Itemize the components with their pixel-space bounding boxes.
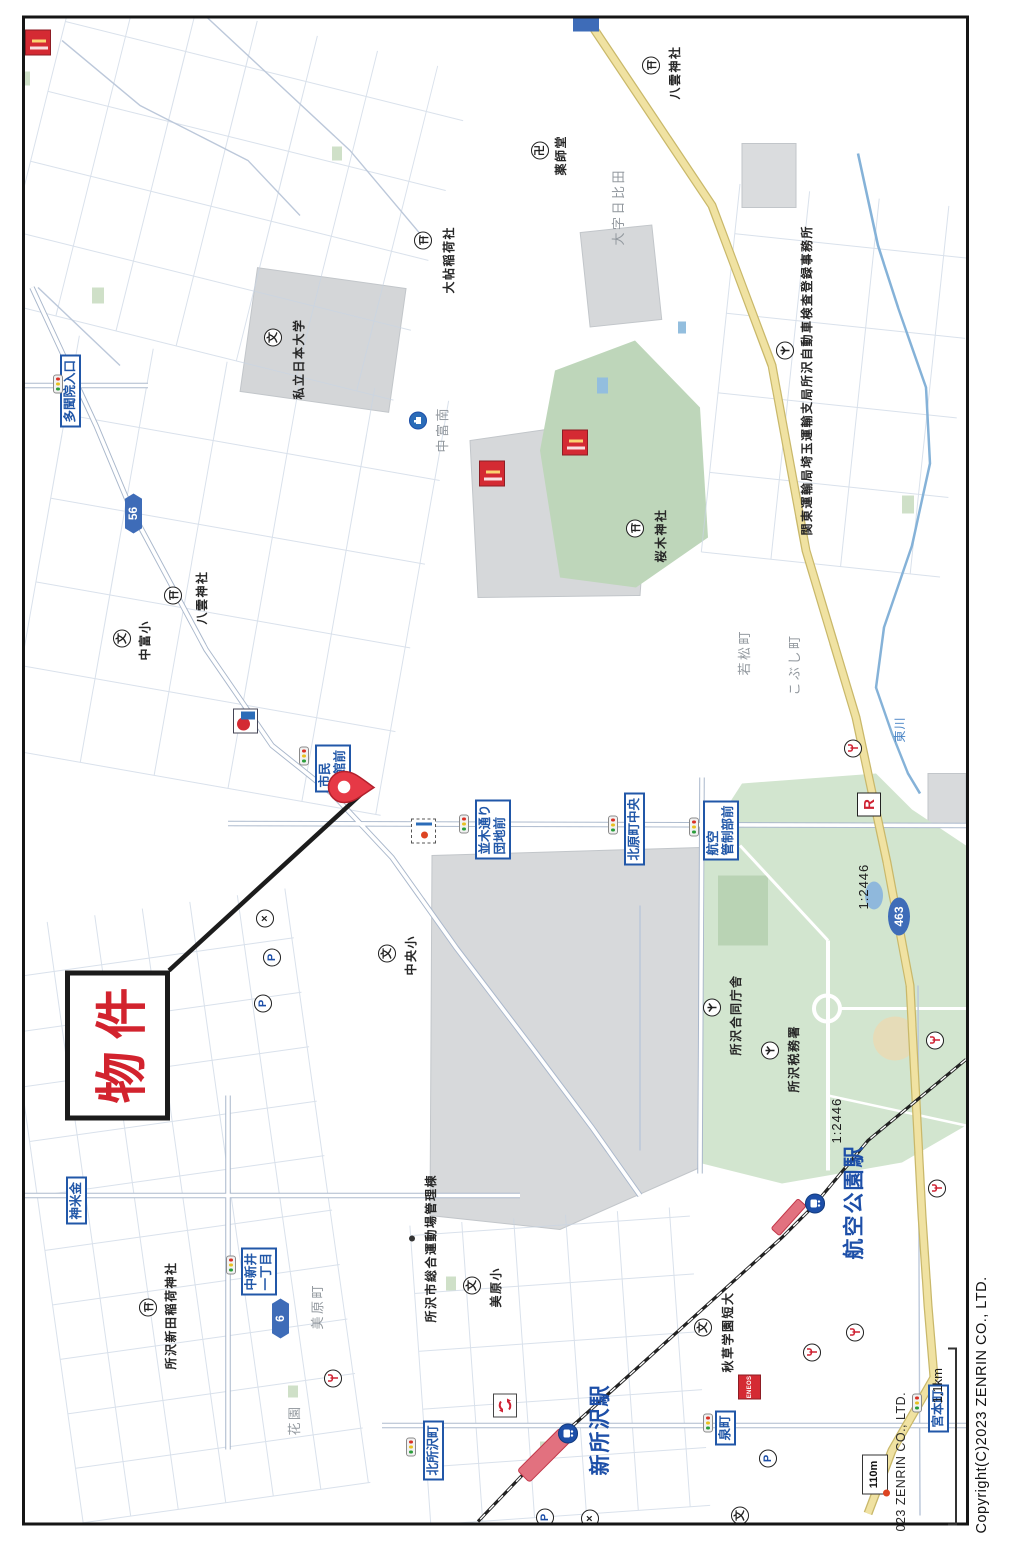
shrine-torii-icon (626, 519, 644, 537)
scanned-map-page: 多聞院入口市民道館前並木通り団地前北原町中央航空管制部前神米金中新井一丁目北所沢… (0, 0, 1020, 1545)
store-sign-marks (30, 46, 48, 49)
scale-bar-label: 1.1km (930, 1368, 945, 1403)
government-office-icon (776, 341, 794, 359)
boxed-label-text: 管制部前 (721, 805, 735, 855)
route-shield-text: 463 (892, 906, 906, 926)
school-icon: 文 (463, 1276, 481, 1294)
page-copyright: Copyright(C)2023 ZENRIN CO., LTD. (974, 1276, 990, 1533)
poi-name-text: 八雲神社 (195, 570, 209, 624)
boxed-label-line: 泉町 (718, 1415, 733, 1440)
poi-name: 所沢合同庁舎 (727, 974, 744, 1055)
poi-dot (409, 1235, 415, 1241)
traffic-light-icon (299, 746, 309, 765)
traffic-light-icon (912, 1393, 922, 1412)
traffic-light-icon (703, 1413, 713, 1432)
gas-blue-bar (241, 711, 255, 719)
boxed-label-text: 北原町中央 (627, 797, 641, 860)
boxed-label-text: 一丁目 (259, 1252, 273, 1290)
boxed-label-text: 北所沢町 (426, 1425, 440, 1475)
poi-name-text: 所沢新田稲荷神社 (164, 1261, 178, 1369)
gas-station-icon (233, 708, 258, 733)
boxed-label-tamonin-iriguchi: 多聞院入口 (60, 354, 81, 427)
restaurant-R-icon: R (857, 792, 881, 816)
red-store-icon (562, 429, 588, 455)
boxed-label-kita-tokorozawa-cho: 北所沢町 (423, 1420, 444, 1480)
boxed-label-text: 多聞院入口 (63, 359, 77, 422)
boxed-label-text: 航空 (706, 830, 720, 855)
traffic-light-icon (689, 817, 699, 836)
route-shield-text: 6 (273, 1315, 287, 1322)
store-sign-marks (32, 40, 46, 43)
boxed-label-line: 道館前 (333, 749, 348, 787)
school-icon: 文 (113, 629, 131, 647)
red-store-icon (25, 29, 51, 55)
boxed-label-kitahara-cho-chuo: 北原町中央 (624, 792, 645, 865)
boxed-label-text: 中新井 (244, 1252, 258, 1290)
signboard-marks (416, 822, 432, 825)
traffic-light-icon (226, 1255, 236, 1274)
route-shield-text: 56 (126, 506, 140, 519)
poi-name-text: 薬師堂 (554, 134, 568, 175)
parking-icon: P (536, 1508, 554, 1526)
boxed-label-text: 団地前 (493, 816, 507, 854)
poi-name: 私立日本大学 (290, 318, 307, 399)
boxed-label-text: 泉町 (718, 1415, 732, 1440)
government-office-icon (761, 1041, 779, 1059)
river-name: 東川 (891, 716, 908, 742)
restaurant-fork-icon (324, 1369, 342, 1387)
district-name: 中富南 (432, 405, 451, 452)
map-scale-ratio-text: 1:2446 (829, 1097, 844, 1143)
poi-name-text: 中央小 (404, 934, 418, 975)
distance-marker-110m: 110m (862, 1454, 888, 1494)
poi-name: 所沢税務署 (785, 1024, 802, 1092)
poi-name: 八雲神社 (666, 45, 683, 99)
boxed-label-line: 北原町中央 (627, 797, 642, 860)
boxed-label-line: 航空 (706, 805, 721, 855)
district-name-text: こぶし町 (787, 633, 802, 695)
train-station-icon (558, 1423, 578, 1443)
traffic-light-icon (53, 374, 63, 393)
property-label: 物件 (80, 975, 155, 1103)
poi-name: 関東運輸局埼玉運輸支局所沢自動車検査登録事務所 (798, 224, 815, 535)
roundabout-arrows-icon (493, 1393, 517, 1417)
store-sign-marks (484, 477, 502, 480)
poi-name-text: 八雲神社 (668, 45, 682, 99)
map-scale-ratio: 1:2446 (829, 1097, 844, 1143)
poi-name: 秋草学園短大 (719, 1291, 736, 1372)
district-name-text: 中富南 (435, 405, 450, 452)
poi-name: 桜木神社 (652, 508, 669, 562)
district-name: 花園 (284, 1404, 303, 1435)
boxed-label-line: 一丁目 (259, 1252, 274, 1290)
poi-name: 中央小 (402, 934, 419, 975)
gas-station-eneos-icon: ENEOS (738, 1374, 761, 1399)
store-sign-marks (567, 446, 585, 449)
red-store-icon (479, 460, 505, 486)
boxed-label-line: 中新井 (244, 1252, 259, 1290)
police-box-icon: × (581, 1509, 599, 1527)
poi-name: 所沢市総合運動場管理棟 (422, 1173, 439, 1322)
school-icon: 文 (694, 1318, 712, 1336)
school-icon: 文 (264, 328, 282, 346)
map-clip-area: 多聞院入口市民道館前並木通り団地前北原町中央航空管制部前神米金中新井一丁目北所沢… (0, 0, 1020, 1545)
parking-icon: P (263, 948, 281, 966)
station-name-text: 新所沢駅 (589, 1383, 612, 1475)
boxed-label-izumi-cho: 泉町 (715, 1410, 736, 1445)
route-shield-463: 463 (888, 897, 910, 935)
signboard-dot (421, 831, 428, 838)
poi-name: 中富小 (136, 619, 153, 660)
boxed-label-line: 市民 (318, 749, 333, 787)
store-sign-marks (569, 440, 583, 443)
map-scale-ratio: 1:2446 (856, 863, 871, 909)
poi-name: 大帖稲荷社 (440, 225, 457, 293)
boxed-label-nakaarai-itchome: 中新井一丁目 (241, 1247, 277, 1295)
parking-icon: P (759, 1449, 777, 1467)
scale-bar (948, 1347, 957, 1525)
district-name-text: 若松町 (737, 628, 752, 675)
route-shield-6: 6 (272, 1298, 289, 1338)
station-name-text: 航空公園駅 (843, 1144, 866, 1259)
property-callout-box: 物件 (65, 970, 170, 1120)
shrine-torii-icon (414, 231, 432, 249)
facility-icon-blue (409, 411, 427, 429)
district-name-text: 美原町 (310, 1282, 325, 1329)
signboard-icon (411, 818, 436, 843)
boxed-label-text: 神米金 (69, 1181, 83, 1219)
boxed-label-text: 並木通り (478, 804, 492, 854)
store-sign-marks (486, 471, 500, 474)
poi-name-text: 秋草学園短大 (721, 1291, 735, 1372)
poi-name-text: 所沢市総合運動場管理棟 (424, 1173, 438, 1322)
route-shield-56: 56 (125, 493, 142, 533)
restaurant-fork-icon (844, 739, 862, 757)
poi-name: 美原小 (487, 1266, 504, 1307)
labels-layer: 多聞院入口市民道館前並木通り団地前北原町中央航空管制部前神米金中新井一丁目北所沢… (0, 0, 1020, 1545)
boxed-label-koku-kansei-bu-mae: 航空管制部前 (703, 800, 739, 860)
marker-red-dot (883, 1489, 890, 1496)
clipped-blue-label (573, 18, 599, 31)
boxed-label-line: 神米金 (69, 1181, 84, 1219)
poi-name-text: 桜木神社 (654, 508, 668, 562)
restaurant-fork-icon (928, 1179, 946, 1197)
district-name: こぶし町 (784, 633, 803, 695)
distance-marker-text: 110m (868, 1460, 880, 1488)
koku-koen-station: 航空公園駅 (838, 1144, 868, 1259)
shrine-torii-icon (164, 586, 182, 604)
school-icon: 文 (731, 1506, 749, 1524)
poi-name: 所沢新田稲荷神社 (162, 1261, 179, 1369)
boxed-label-line: 並木通り (478, 804, 493, 854)
district-name: 大字日比田 (608, 167, 627, 245)
restaurant-fork-icon (803, 1343, 821, 1361)
restaurant-fork-icon (846, 1323, 864, 1341)
poi-name-text: 美原小 (489, 1266, 503, 1307)
train-station-icon (805, 1193, 825, 1213)
boxed-label-namiki-dori-danchi-mae: 並木通り団地前 (475, 799, 511, 859)
shin-tokorozawa-station: 新所沢駅 (584, 1383, 614, 1475)
district-name: 美原町 (307, 1282, 326, 1329)
boxed-label-text: 道館前 (333, 749, 347, 787)
school-icon: 文 (378, 944, 396, 962)
boxed-label-shimin-dokan-mae: 市民道館前 (315, 744, 351, 792)
boxed-label-line: 管制部前 (721, 805, 736, 855)
map-partial-copyright: 023 ZENRIN CO., LTD. (894, 1391, 908, 1531)
shrine-torii-icon (642, 56, 660, 74)
boxed-label-kamegome: 神米金 (66, 1176, 87, 1224)
parking-icon: P (254, 994, 272, 1012)
district-name-text: 花園 (287, 1404, 302, 1435)
poi-name-text: 関東運輸局埼玉運輸支局所沢自動車検査登録事務所 (800, 224, 814, 535)
river-name-text: 東川 (893, 716, 907, 742)
traffic-light-icon (608, 815, 618, 834)
boxed-label-text: 市民 (318, 762, 332, 787)
poi-name: 八雲神社 (193, 570, 210, 624)
traffic-light-icon (459, 814, 469, 833)
map-scale-ratio-text: 1:2446 (856, 863, 871, 909)
police-box-icon: × (256, 909, 274, 927)
district-name-text: 大字日比田 (611, 167, 626, 245)
poi-name-text: 所沢税務署 (787, 1024, 801, 1092)
temple-manji-icon: 卍 (531, 141, 549, 159)
government-office-icon (703, 998, 721, 1016)
restaurant-fork-icon (926, 1031, 944, 1049)
boxed-label-line: 団地前 (493, 804, 508, 854)
district-name: 若松町 (734, 628, 753, 675)
poi-name-text: 私立日本大学 (292, 318, 306, 399)
boxed-label-line: 多聞院入口 (63, 359, 78, 422)
poi-name: 薬師堂 (552, 134, 569, 175)
poi-name-text: 大帖稲荷社 (442, 225, 456, 293)
shrine-torii-icon (139, 1298, 157, 1316)
boxed-label-line: 北所沢町 (426, 1425, 441, 1475)
map-landscape-canvas: 多聞院入口市民道館前並木通り団地前北原町中央航空管制部前神米金中新井一丁目北所沢… (0, 0, 1020, 1545)
poi-name-text: 中富小 (138, 619, 152, 660)
traffic-light-icon (406, 1437, 416, 1456)
poi-name-text: 所沢合同庁舎 (729, 974, 743, 1055)
